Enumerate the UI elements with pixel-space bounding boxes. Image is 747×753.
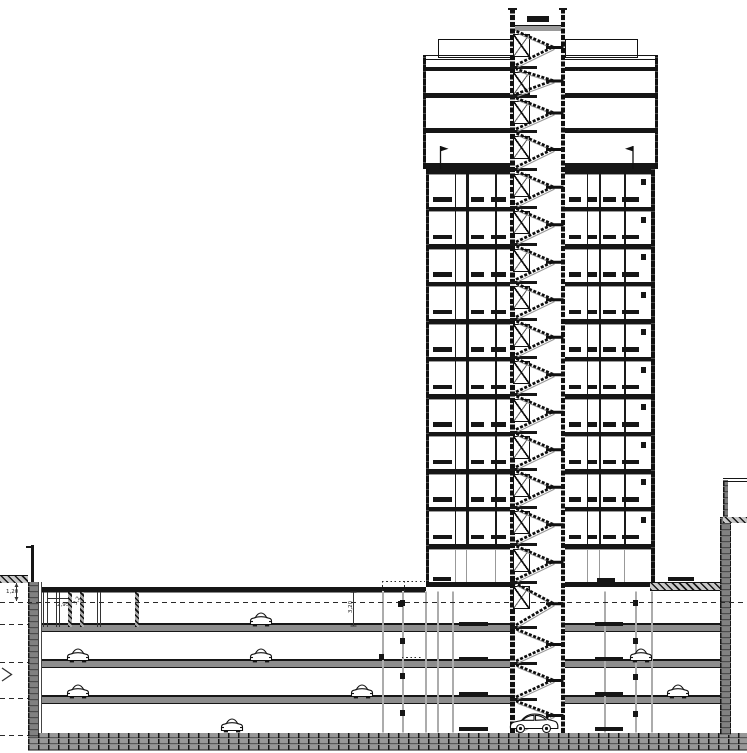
window-sill-mark — [622, 235, 640, 240]
stair-landing-slab — [510, 431, 537, 434]
stair-landing-slab — [510, 206, 537, 209]
room-partition — [624, 436, 626, 469]
stair-landing-slab — [510, 626, 537, 629]
tower-facade-wall — [426, 169, 430, 587]
stair-landing-slab — [510, 168, 537, 171]
garage-column — [452, 591, 454, 733]
sidewalk-left — [0, 575, 28, 583]
dotted-leader — [402, 657, 422, 658]
window-sill-mark — [491, 272, 507, 277]
room-partition — [587, 211, 588, 244]
window-sill-mark — [433, 535, 452, 540]
window-sill-mark — [587, 347, 597, 352]
shaft-wall-cap — [559, 8, 568, 10]
room-partition — [624, 174, 626, 207]
room-partition — [466, 399, 469, 432]
room-partition — [587, 436, 588, 469]
window-sill-mark — [471, 460, 484, 465]
window-sill-mark — [433, 385, 452, 390]
ground-floor-dash — [597, 578, 615, 582]
room-partition — [599, 511, 602, 544]
window-sill-mark — [603, 460, 617, 465]
stair-landing-slab — [510, 66, 537, 69]
roof-slab-band — [565, 67, 658, 72]
room-partition — [587, 399, 588, 432]
roof-slab-band — [565, 128, 658, 133]
room-partition — [495, 474, 497, 507]
floor-slab — [565, 207, 651, 213]
shaft-roof-slab — [515, 25, 561, 31]
dim-label-ground-offset: 1,20 — [6, 589, 18, 595]
parking-slab — [565, 659, 720, 668]
room-partition — [624, 361, 626, 394]
window-sill-mark — [433, 235, 452, 240]
stair-door-box — [513, 34, 531, 57]
window-sill-mark — [587, 385, 597, 390]
retaining-wall-right — [720, 517, 732, 735]
garage-column — [382, 591, 384, 733]
adjacent-parapet-line — [723, 478, 747, 479]
parking-floor-dash — [459, 622, 488, 626]
upper-facade-wall — [655, 55, 658, 169]
window-sill-mark — [587, 460, 597, 465]
room-partition — [455, 174, 456, 207]
upper-facade-wall — [423, 55, 426, 169]
stair-landing-slab — [510, 662, 537, 665]
room-partition — [466, 436, 469, 469]
window-sill-mark — [433, 422, 452, 427]
window-sill-mark — [603, 385, 617, 390]
tower-facade-wall — [651, 169, 655, 582]
garage-column — [604, 591, 606, 733]
column-marker — [400, 638, 405, 644]
roof-hatch-rect — [527, 16, 549, 23]
storage-wall — [135, 592, 139, 627]
window-sill-mark — [603, 272, 617, 277]
room-partition — [624, 249, 626, 282]
stair-door-box — [513, 511, 531, 534]
column-marker — [400, 673, 405, 679]
room-partition — [466, 511, 469, 544]
window-sill-mark — [471, 235, 484, 240]
floor-slab — [565, 432, 651, 438]
room-partition — [455, 474, 456, 507]
room-partition — [587, 286, 588, 319]
window-sill-mark — [622, 422, 640, 427]
roof-slab-band — [565, 55, 658, 56]
stair-landing-slab — [510, 95, 537, 98]
room-partition — [495, 436, 497, 469]
garage-column — [651, 591, 653, 733]
window-sill-mark — [569, 497, 581, 502]
floor-slab — [565, 244, 651, 250]
facade-vent-mark — [641, 517, 647, 523]
floor-slab — [565, 319, 651, 325]
window-sill-mark — [622, 272, 640, 277]
garage-column — [425, 591, 427, 733]
window-sill-mark — [471, 197, 484, 202]
window-sill-mark — [491, 535, 507, 540]
facade-vent-mark — [641, 404, 647, 410]
fence-post-tick — [26, 546, 34, 548]
window-sill-mark — [491, 310, 507, 315]
column-marker — [379, 654, 384, 660]
floor-slab — [565, 544, 651, 550]
window-sill-mark — [491, 385, 507, 390]
level-dash-stub — [0, 662, 28, 663]
room-partition — [587, 324, 588, 357]
window-sill-mark — [603, 422, 617, 427]
foundation-strip — [28, 733, 747, 751]
window-sill-mark — [471, 497, 484, 502]
stair-door-box — [513, 474, 531, 497]
garage-wall-liner — [38, 582, 39, 733]
stair-landing-slab — [510, 543, 537, 546]
column-marker — [633, 674, 638, 680]
window-sill-mark — [491, 197, 507, 202]
stair-landing-slab — [510, 393, 537, 396]
facade-vent-mark — [641, 329, 647, 335]
facade-vent-mark — [641, 254, 647, 260]
room-partition — [599, 399, 602, 432]
parking-floor-dash — [595, 692, 623, 696]
window-sill-mark — [471, 535, 484, 540]
stair-landing-slab — [510, 130, 537, 133]
room-partition — [599, 249, 602, 282]
window-sill-mark — [491, 460, 507, 465]
window-sill-mark — [433, 310, 452, 315]
window-sill-mark — [433, 347, 452, 352]
window-sill-mark — [433, 460, 452, 465]
room-partition — [599, 324, 602, 357]
window-sill-mark — [433, 497, 452, 502]
ground-floor-dash — [433, 577, 451, 581]
parking-slab — [565, 695, 720, 704]
stair-door-box — [513, 286, 531, 309]
room-partition — [599, 436, 602, 469]
stair-door-box — [513, 72, 531, 95]
dim-label-clear-height-a: 2,95 — [57, 602, 69, 608]
window-sill-mark — [587, 497, 597, 502]
facade-vent-mark — [641, 217, 647, 223]
parking-floor-dash — [595, 727, 623, 731]
lobby-mullion — [624, 549, 625, 582]
stair-landing-slab — [510, 356, 537, 359]
parking-slab — [42, 623, 510, 632]
level-dash-stub — [0, 735, 28, 736]
parking-floor-dash — [459, 657, 488, 661]
room-partition — [624, 511, 626, 544]
stair-door-box — [513, 211, 531, 234]
window-sill-mark — [569, 422, 581, 427]
room-partition — [466, 286, 469, 319]
window-sill-mark — [603, 347, 617, 352]
room-partition — [466, 474, 469, 507]
stair-door-box — [513, 549, 531, 572]
room-partition — [587, 474, 588, 507]
room-partition — [455, 399, 456, 432]
window-sill-mark — [587, 272, 597, 277]
window-sill-mark — [622, 197, 640, 202]
room-partition — [624, 286, 626, 319]
room-partition — [587, 174, 588, 207]
adjacent-parapet-line — [723, 481, 747, 482]
lobby-mullion — [455, 549, 456, 582]
room-partition — [455, 436, 456, 469]
window-sill-mark — [603, 197, 617, 202]
room-partition — [455, 211, 456, 244]
column-marker — [633, 711, 638, 717]
room-partition — [587, 361, 588, 394]
parking-slab — [42, 695, 510, 704]
stair-landing-slab — [510, 281, 537, 284]
room-partition — [587, 249, 588, 282]
floor-slab — [565, 507, 651, 513]
stair-door-box — [513, 249, 531, 272]
roof-slab-band — [423, 93, 511, 98]
window-sill-mark — [622, 385, 640, 390]
room-partition — [624, 324, 626, 357]
window-sill-mark — [622, 347, 640, 352]
drawing-layers — [0, 0, 747, 753]
storage-wall — [68, 592, 72, 627]
parking-slab — [42, 659, 510, 668]
room-partition — [466, 211, 469, 244]
canopy-dotted-drop — [382, 581, 383, 592]
adjacent-roof-band — [723, 517, 747, 523]
window-sill-mark — [569, 460, 581, 465]
window-sill-mark — [471, 385, 484, 390]
storage-wall — [43, 592, 44, 627]
window-sill-mark — [569, 310, 581, 315]
window-sill-mark — [587, 535, 597, 540]
stair-landing-slab — [510, 581, 537, 584]
room-partition — [455, 361, 456, 394]
room-partition — [455, 324, 456, 357]
garage-column — [437, 591, 439, 733]
fence-post-left — [31, 545, 35, 582]
stair-door-box — [513, 586, 531, 609]
level-dash-stub — [0, 698, 28, 699]
room-partition — [495, 361, 497, 394]
window-sill-mark — [471, 272, 484, 277]
room-partition — [495, 249, 497, 282]
window-sill-mark — [491, 235, 507, 240]
window-sill-mark — [587, 422, 597, 427]
floor-slab — [565, 169, 651, 175]
window-sill-mark — [569, 347, 581, 352]
window-sill-mark — [491, 347, 507, 352]
roof-slab-band — [423, 55, 511, 56]
stair-door-box — [513, 324, 531, 347]
parking-floor-dash — [459, 692, 488, 696]
column-marker — [400, 710, 405, 716]
facade-vent-mark — [641, 292, 647, 298]
stair-door-box — [513, 361, 531, 384]
storage-lintel — [47, 598, 68, 599]
stair-landing-slab — [510, 468, 537, 471]
roof-slab-band — [423, 128, 511, 133]
ground-floor-dash — [668, 577, 694, 581]
stair-landing-slab — [510, 318, 537, 321]
facade-vent-mark — [641, 367, 647, 373]
room-partition — [624, 211, 626, 244]
window-sill-mark — [603, 497, 617, 502]
window-sill-mark — [569, 235, 581, 240]
floor-slab — [565, 282, 651, 288]
dim-label-clear-height-c: 3,20 — [348, 601, 354, 613]
shaft-wall-cap — [508, 8, 517, 10]
datum-dash-line — [0, 602, 747, 603]
parking-floor-dash — [595, 622, 623, 626]
room-partition — [599, 474, 602, 507]
room-partition — [495, 511, 497, 544]
window-sill-mark — [587, 310, 597, 315]
room-partition — [455, 286, 456, 319]
room-partition — [587, 511, 588, 544]
room-partition — [455, 511, 456, 544]
window-sill-mark — [491, 497, 507, 502]
window-sill-mark — [491, 422, 507, 427]
roof-slab-band — [565, 59, 658, 60]
parking-floor-dash — [595, 657, 623, 661]
room-partition — [624, 474, 626, 507]
storage-wall — [100, 592, 101, 627]
entry-ramp-slab — [650, 582, 720, 591]
stair-door-box — [513, 136, 531, 159]
roof-slab-band — [423, 59, 511, 60]
facade-vent-mark — [641, 442, 647, 448]
facade-vent-mark — [641, 479, 647, 485]
window-sill-mark — [569, 197, 581, 202]
room-partition — [599, 211, 602, 244]
room-partition — [624, 399, 626, 432]
lobby-mullion — [587, 549, 588, 582]
window-sill-mark — [569, 535, 581, 540]
parking-slab — [565, 623, 720, 632]
window-sill-mark — [603, 310, 617, 315]
floor-slab — [565, 469, 651, 475]
stair-door-box — [513, 101, 531, 124]
roof-slab-band — [565, 93, 658, 98]
canopy-dotted-drop — [404, 581, 405, 592]
window-sill-mark — [569, 385, 581, 390]
room-partition — [455, 249, 456, 282]
window-sill-mark — [622, 535, 640, 540]
window-sill-mark — [622, 497, 640, 502]
floor-slab — [565, 357, 651, 363]
window-sill-mark — [433, 197, 452, 202]
room-partition — [599, 361, 602, 394]
garage-wall-liner — [41, 582, 42, 733]
window-sill-mark — [587, 197, 597, 202]
window-sill-mark — [622, 460, 640, 465]
section-drawing-canvas: 1,20 2,95 3,2 3,20 — [0, 0, 747, 753]
window-sill-mark — [603, 235, 617, 240]
stair-landing-slab — [510, 506, 537, 509]
room-partition — [495, 399, 497, 432]
room-partition — [495, 324, 497, 357]
window-sill-mark — [587, 235, 597, 240]
roof-slab-band — [423, 67, 511, 72]
window-sill-mark — [622, 310, 640, 315]
floor-slab — [565, 394, 651, 400]
stair-landing-slab — [510, 243, 537, 246]
window-sill-mark — [433, 272, 452, 277]
room-partition — [495, 211, 497, 244]
stair-landing-slab — [510, 698, 537, 701]
window-sill-mark — [603, 535, 617, 540]
stair-door-box — [513, 399, 531, 422]
window-sill-mark — [471, 347, 484, 352]
lobby-mullion — [466, 549, 467, 582]
window-sill-mark — [471, 422, 484, 427]
stair-door-box — [513, 436, 531, 459]
room-partition — [466, 174, 469, 207]
room-partition — [466, 249, 469, 282]
room-partition — [599, 174, 602, 207]
facade-vent-mark — [641, 179, 647, 185]
retaining-wall-left — [28, 582, 38, 737]
room-partition — [495, 286, 497, 319]
floor-slab — [426, 544, 511, 550]
canopy-marker — [398, 601, 403, 607]
level-dash-stub — [0, 624, 28, 625]
room-partition — [495, 174, 497, 207]
room-partition — [466, 324, 469, 357]
storage-wall — [97, 592, 98, 627]
room-partition — [599, 286, 602, 319]
stair-door-box — [513, 174, 531, 197]
lobby-mullion — [495, 549, 496, 582]
window-sill-mark — [569, 272, 581, 277]
window-sill-mark — [471, 310, 484, 315]
column-marker — [633, 638, 638, 644]
courtyard-wall-right — [723, 480, 728, 517]
parking-floor-dash — [459, 727, 488, 731]
room-partition — [466, 361, 469, 394]
